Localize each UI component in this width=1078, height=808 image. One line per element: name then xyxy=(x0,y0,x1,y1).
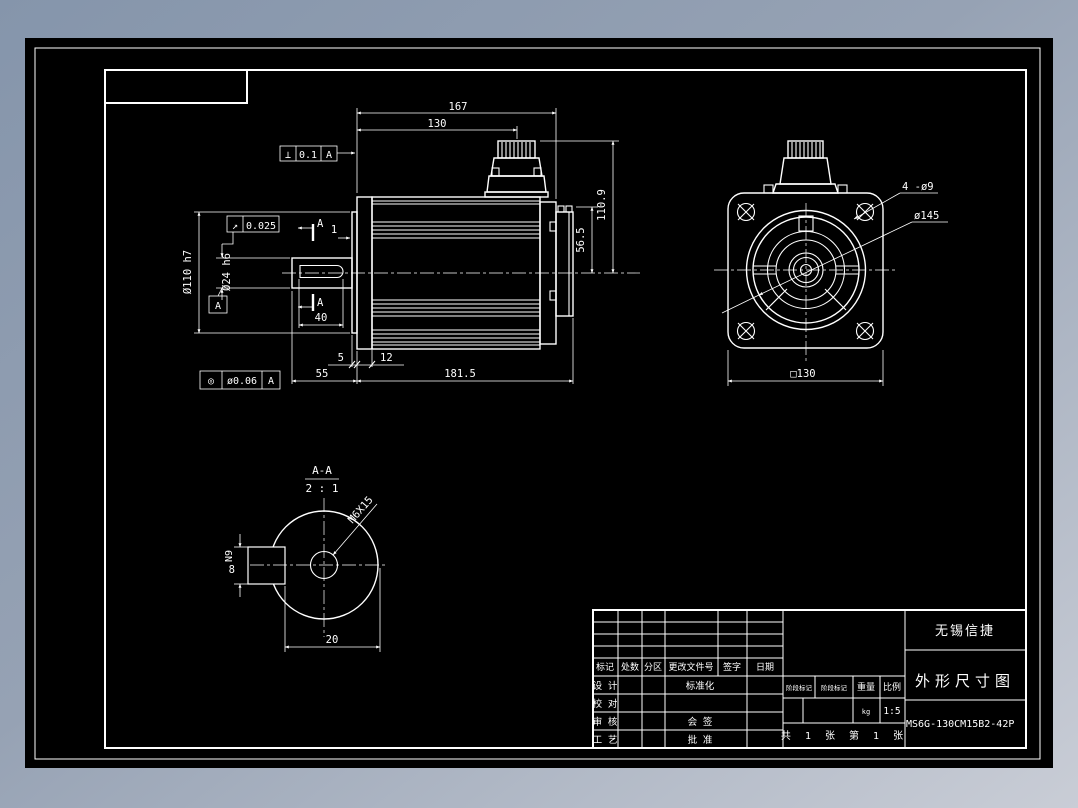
tb-hdr-zone: 分区 xyxy=(644,662,662,673)
runout-symbol: ↗ xyxy=(232,221,238,232)
tb-countersign: 会 签 xyxy=(688,716,713,728)
tb-hdr-mark: 标记 xyxy=(596,661,614,673)
conc-value: ø0.06 xyxy=(227,376,257,387)
perp-datum: A xyxy=(326,150,332,161)
tb-role-process: 工 艺 xyxy=(593,735,618,746)
dim-sq130: □130 xyxy=(790,368,815,380)
tb-sheet-count: 共 1 张 第 1 张 xyxy=(781,729,907,742)
conc-datum: A xyxy=(268,376,274,387)
dim-55: 55 xyxy=(316,368,329,380)
drawing-sheet[interactable] xyxy=(25,38,1053,768)
dim-4-holes: 4 -ø9 xyxy=(902,181,934,193)
tb-role-design: 设 计 xyxy=(593,680,618,692)
section-title: A-A xyxy=(312,464,332,477)
perp-symbol: ⊥ xyxy=(285,150,291,161)
section-mark-top: A xyxy=(317,218,324,230)
dim-110-9: 110.9 xyxy=(596,189,608,221)
dim-key-width: 8 xyxy=(229,564,235,576)
dim-1: 1 xyxy=(331,224,337,236)
dim-dia24: Ø24 h6 xyxy=(221,253,233,291)
dim-dia110: Ø110 h7 xyxy=(182,250,194,294)
dim-dia145: ø145 xyxy=(914,210,939,222)
tb-hdr-signature: 签字 xyxy=(723,661,741,673)
perp-value: 0.1 xyxy=(299,150,317,161)
tb-drawing-title: 外形尺寸图 xyxy=(915,672,1015,690)
runout-value: 0.025 xyxy=(246,221,276,232)
tb-scale-value: 1:5 xyxy=(883,706,900,717)
tb-hdr-date: 日期 xyxy=(756,662,774,673)
tb-company: 无锡信捷 xyxy=(935,624,995,639)
image-viewer-page: 167 130 110.9 56.5 55 181.5 5 12 40 xyxy=(0,0,1078,808)
tb-scale-label: 比例 xyxy=(883,681,901,693)
tb-role-check: 校 对 xyxy=(593,698,618,710)
dim-56-5: 56.5 xyxy=(575,227,587,252)
tb-weight-value: kg xyxy=(862,708,870,716)
dim-key-tol: N9 xyxy=(224,550,235,562)
tb-role-review: 审 核 xyxy=(593,716,618,728)
datum-a-label: A xyxy=(215,301,221,312)
dim-40: 40 xyxy=(315,312,328,324)
conc-symbol: ◎ xyxy=(208,376,214,387)
dim-20: 20 xyxy=(326,634,339,646)
dim-12: 12 xyxy=(380,352,393,364)
tb-part-number: MS6G-130CM15B2-42P xyxy=(906,719,1014,730)
dim-167: 167 xyxy=(449,101,468,113)
tb-hdr-doc-no: 更改文件号 xyxy=(668,661,713,673)
cad-drawing: 167 130 110.9 56.5 55 181.5 5 12 40 xyxy=(0,0,1078,808)
section-mark-bottom: A xyxy=(317,297,324,309)
dim-5: 5 xyxy=(338,352,344,364)
tb-weight-label: 重量 xyxy=(857,681,875,693)
section-scale: 2 : 1 xyxy=(305,482,338,495)
tb-standardization: 标准化 xyxy=(686,680,715,692)
tb-approve: 批 准 xyxy=(688,734,713,746)
tb-stage-mark-1: 阶段标记 xyxy=(786,683,813,692)
tb-hdr-count: 处数 xyxy=(621,661,639,673)
dim-130: 130 xyxy=(428,118,447,130)
dim-181-5: 181.5 xyxy=(444,368,476,380)
tb-stage-mark-2: 阶段标记 xyxy=(821,683,848,692)
